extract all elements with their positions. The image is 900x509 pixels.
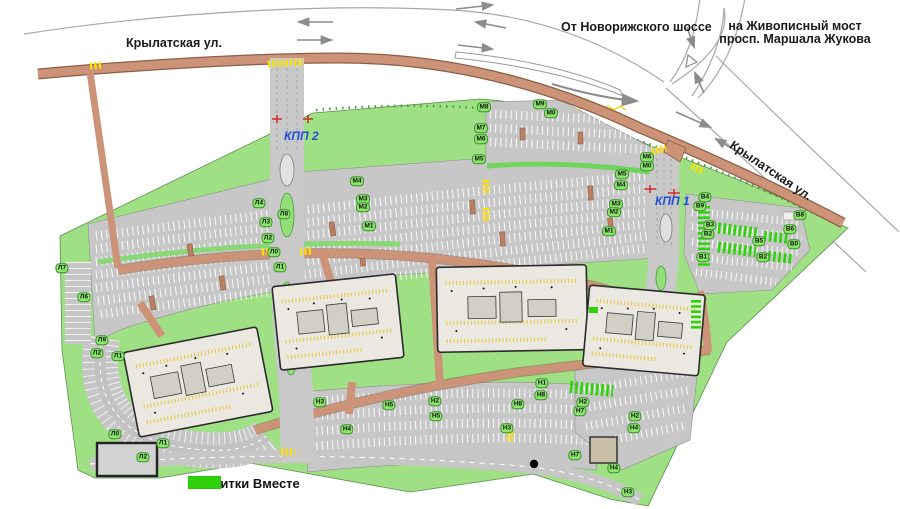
site-plan-drawing — [0, 0, 900, 509]
poi-dot — [530, 460, 538, 468]
small-building-left — [97, 443, 157, 476]
drinks-vmeste-marker — [589, 307, 598, 313]
site-plan-map: Крылатская ул. От Новорижского шоссе на … — [0, 0, 900, 509]
building-4 — [583, 285, 706, 376]
small-building-right — [590, 437, 617, 463]
building-3 — [436, 265, 587, 353]
building-2 — [272, 274, 404, 371]
